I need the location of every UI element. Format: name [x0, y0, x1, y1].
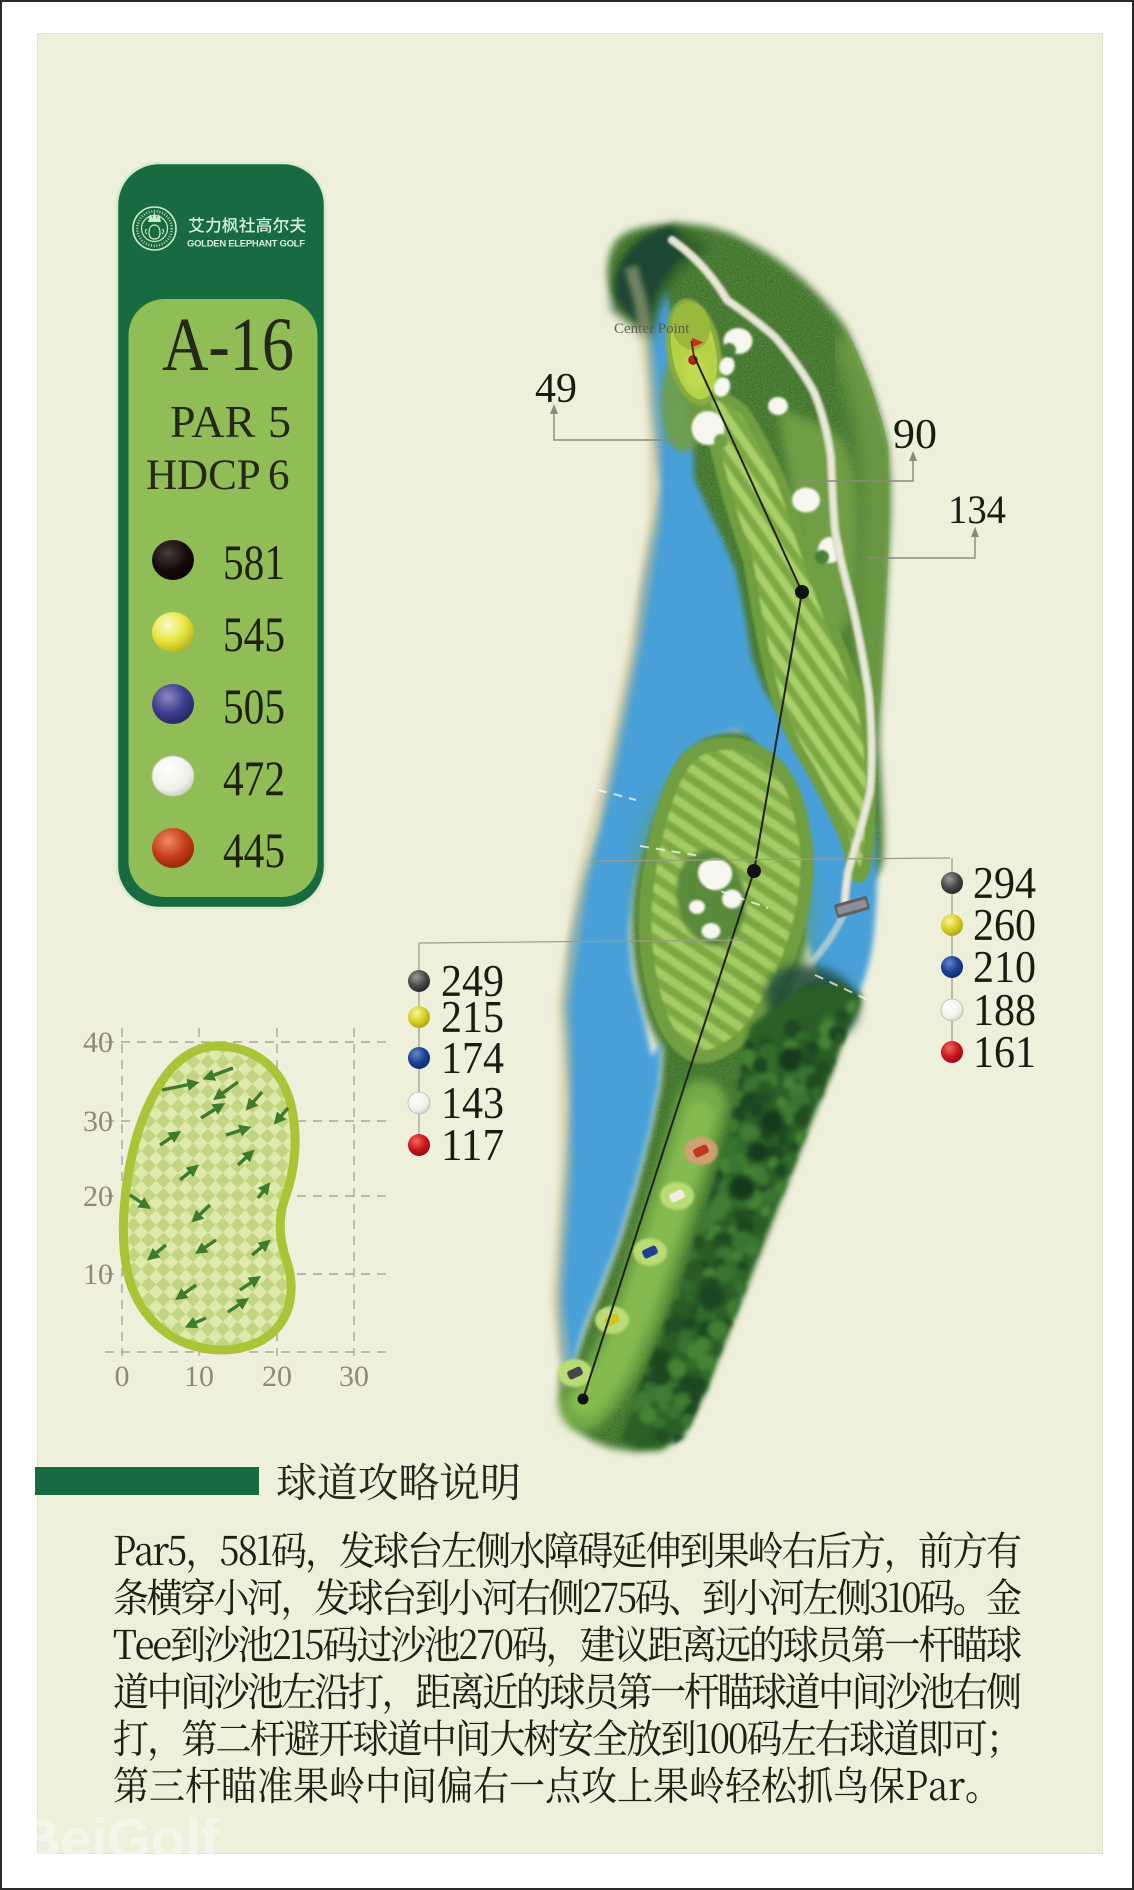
svg-text:505: 505 [223, 678, 285, 734]
svg-text:20: 20 [262, 1360, 292, 1393]
svg-text:10: 10 [83, 1258, 113, 1291]
svg-text:117: 117 [441, 1120, 504, 1170]
svg-text:472: 472 [223, 750, 285, 806]
svg-text:0: 0 [115, 1360, 130, 1393]
svg-text:30: 30 [83, 1105, 113, 1138]
svg-text:445: 445 [223, 822, 285, 878]
svg-text:134: 134 [948, 487, 1006, 532]
svg-text:545: 545 [223, 606, 285, 662]
svg-text:GOLDEN ELEPHANT GOLF: GOLDEN ELEPHANT GOLF [187, 239, 305, 250]
svg-text:PAR: PAR [170, 396, 256, 447]
svg-text:20: 20 [83, 1180, 113, 1213]
svg-text:6: 6 [268, 452, 290, 499]
svg-text:49: 49 [535, 366, 577, 412]
svg-text:5: 5 [268, 396, 291, 447]
svg-text:BeiGolf: BeiGolf [20, 1807, 219, 1870]
svg-text:174: 174 [441, 1033, 504, 1083]
svg-text:581: 581 [223, 534, 285, 590]
svg-text:90: 90 [893, 412, 937, 458]
svg-text:40: 40 [83, 1026, 113, 1059]
svg-text:161: 161 [973, 1027, 1036, 1077]
svg-text:HDCP: HDCP [146, 452, 261, 499]
svg-text:A-16: A-16 [162, 303, 294, 387]
svg-text:30: 30 [339, 1360, 369, 1393]
svg-text:Center Point: Center Point [614, 321, 690, 337]
svg-text:10: 10 [184, 1360, 214, 1393]
